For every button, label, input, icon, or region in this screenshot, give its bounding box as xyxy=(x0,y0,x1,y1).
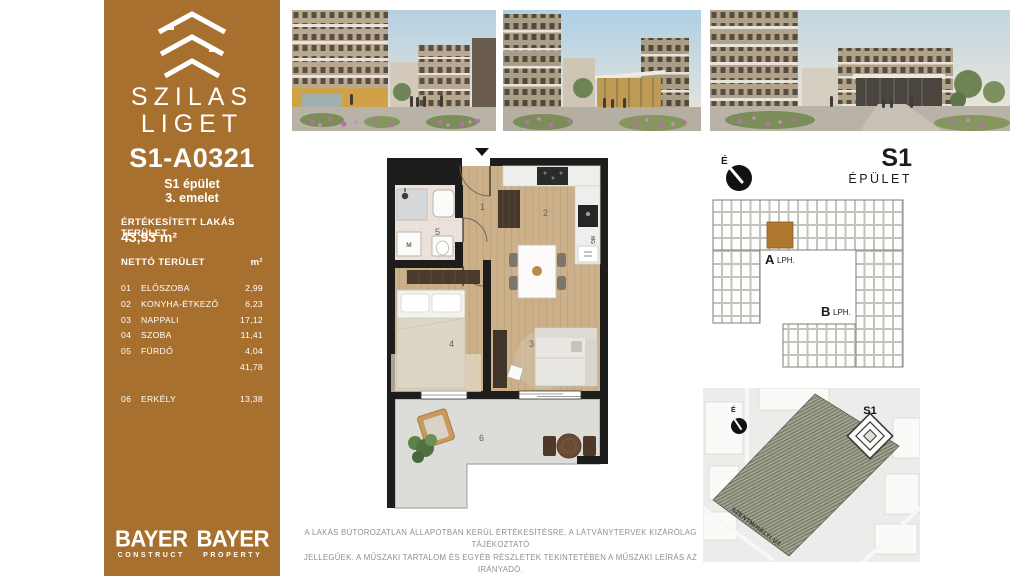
kitchen-cabinet xyxy=(578,246,598,262)
pillow xyxy=(401,294,429,312)
highlighted-unit xyxy=(767,222,793,248)
table-row: 03 NAPPALI 17,12 xyxy=(121,315,263,325)
shower xyxy=(397,189,427,220)
bedroom-wardrobe xyxy=(407,270,480,284)
apartment-floor-plan: M MG xyxy=(385,148,610,513)
sidebar: SZILAS LIGET S1-A0321 S1 épület 3. emele… xyxy=(104,0,280,576)
building-code: S1 xyxy=(792,146,912,171)
brand-line2: LIGET xyxy=(104,111,280,138)
svg-text:É: É xyxy=(731,405,736,414)
developer-logos: BAYER CONSTRUCT BAYER PROPERTY xyxy=(104,528,280,559)
room-area-table: 01 ELŐSZOBA 2,99 02 KONYHA-ÉTKEZŐ 6,23 0… xyxy=(121,283,263,410)
table-row: 02 KONYHA-ÉTKEZŐ 6,23 xyxy=(121,299,263,309)
net-total-row: 41,78 xyxy=(121,362,263,372)
net-area-unit: m² xyxy=(251,257,263,268)
building-code-block: S1 ÉPÜLET xyxy=(792,146,912,186)
disclaimer-line2: JELLEGŰEK. A MŰSZAKI TARTALOM ÉS EGYÉB R… xyxy=(293,552,708,576)
dishwasher-label: MG xyxy=(589,236,595,244)
sold-area-value: 43,93 m² xyxy=(121,229,177,245)
staircase-b-label: B xyxy=(821,304,830,319)
net-total-value: 41,78 xyxy=(240,362,263,372)
room-label-balcony: 6 xyxy=(479,433,484,443)
tv-sideboard xyxy=(493,330,507,388)
unit-id: S1-A0321 xyxy=(104,143,280,174)
balcony-table xyxy=(557,434,581,458)
room-label-living: 3 xyxy=(529,339,534,349)
datasheet-page: SZILAS LIGET S1-A0321 S1 épület 3. emele… xyxy=(0,0,1024,576)
balcony-bench xyxy=(543,436,556,456)
staircase-a-sub: LPH. xyxy=(777,256,795,265)
svg-text:M: M xyxy=(406,242,411,249)
exterior-render-2 xyxy=(503,10,701,131)
s1-map-label: S1 xyxy=(863,405,876,417)
bathroom-sink xyxy=(433,190,454,217)
north-letter: É xyxy=(721,154,728,167)
exterior-render-3 xyxy=(710,10,1010,131)
room-label-kitchen: 2 xyxy=(543,208,548,218)
szilas-liget-logo-icon xyxy=(147,10,237,82)
room-label-bathroom: 5 xyxy=(435,227,440,237)
cooktop xyxy=(537,167,568,185)
balcony-row: 06 ERKÉLY 13,38 xyxy=(121,394,263,404)
throw-pillow xyxy=(571,341,582,352)
exterior-render-1 xyxy=(292,10,496,131)
building-code-sub: ÉPÜLET xyxy=(792,172,912,186)
bayer-construct-logo: BAYER CONSTRUCT xyxy=(115,528,188,559)
table-row: 05 FÜRDŐ 4,04 xyxy=(121,346,263,356)
disclaimer-line1: A LAKÁS BÚTOROZATLAN ÁLLAPOTBAN KERÜL ÉR… xyxy=(293,527,708,552)
table-row: 01 ELŐSZOBA 2,99 xyxy=(121,283,263,293)
balcony-bench xyxy=(583,436,596,456)
building-level-schematic: A LPH. B LPH. xyxy=(703,186,918,382)
net-area-header: NETTÓ TERÜLET m² xyxy=(121,257,263,268)
staircase-b-sub: LPH. xyxy=(833,308,851,317)
table-row: 04 SZOBA 11,41 xyxy=(121,330,263,340)
shower-head-icon xyxy=(402,193,408,199)
bayer-property-logo: BAYER PROPERTY xyxy=(197,528,270,559)
room-label-bedroom: 4 xyxy=(449,339,454,349)
building-name: S1 épület xyxy=(104,177,280,191)
brand-line1: SZILAS xyxy=(104,84,280,111)
building-wings xyxy=(713,200,903,367)
floor-name: 3. emelet xyxy=(104,191,280,205)
room-label-hallway: 1 xyxy=(480,202,485,212)
entrance-marker-icon xyxy=(475,148,489,156)
pillow xyxy=(432,294,461,312)
brand-name: SZILAS LIGET xyxy=(104,84,280,138)
site-map: S1 É SZENTMIHÁLYI ÚT xyxy=(703,388,920,562)
net-area-label: NETTÓ TERÜLET xyxy=(121,257,205,268)
disclaimer: A LAKÁS BÚTOROZATLAN ÁLLAPOTBAN KERÜL ÉR… xyxy=(293,527,708,576)
staircase-a-label: A xyxy=(765,252,775,267)
